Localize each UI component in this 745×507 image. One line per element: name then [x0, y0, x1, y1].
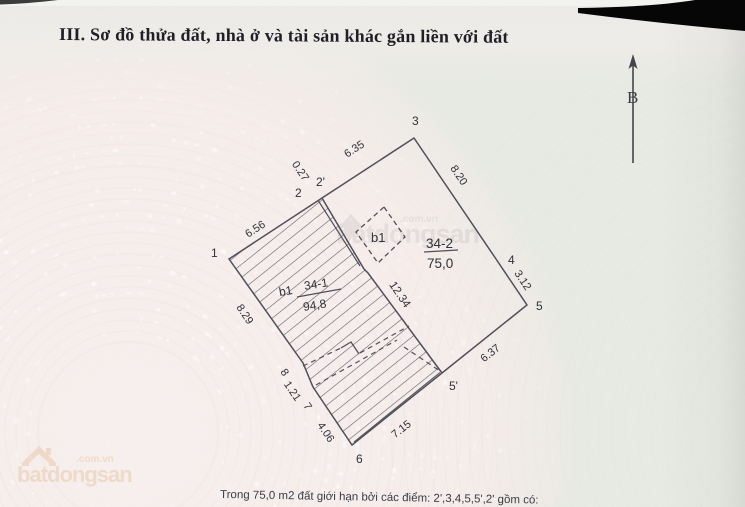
svg-text:5': 5' — [449, 379, 458, 393]
svg-text:5: 5 — [536, 299, 543, 313]
svg-text:III. Sơ đồ thửa đất, nhà ở và: III. Sơ đồ thửa đất, nhà ở và tài sản kh… — [59, 24, 509, 47]
svg-text:2': 2' — [316, 175, 325, 189]
svg-text:3: 3 — [412, 114, 419, 128]
svg-text:6: 6 — [356, 452, 363, 466]
svg-text:.com.vn: .com.vn — [76, 454, 114, 465]
svg-text:batdongsan: batdongsan — [17, 462, 132, 487]
svg-text:4: 4 — [508, 253, 515, 267]
svg-text:1: 1 — [211, 246, 218, 260]
svg-text:75,0: 75,0 — [427, 256, 453, 271]
svg-text:34-2: 34-2 — [426, 236, 453, 251]
svg-text:.com.vn: .com.vn — [400, 214, 438, 225]
svg-text:B: B — [627, 88, 638, 107]
svg-text:b1: b1 — [371, 230, 385, 245]
svg-text:b1: b1 — [278, 283, 294, 299]
svg-text:2: 2 — [295, 186, 302, 200]
